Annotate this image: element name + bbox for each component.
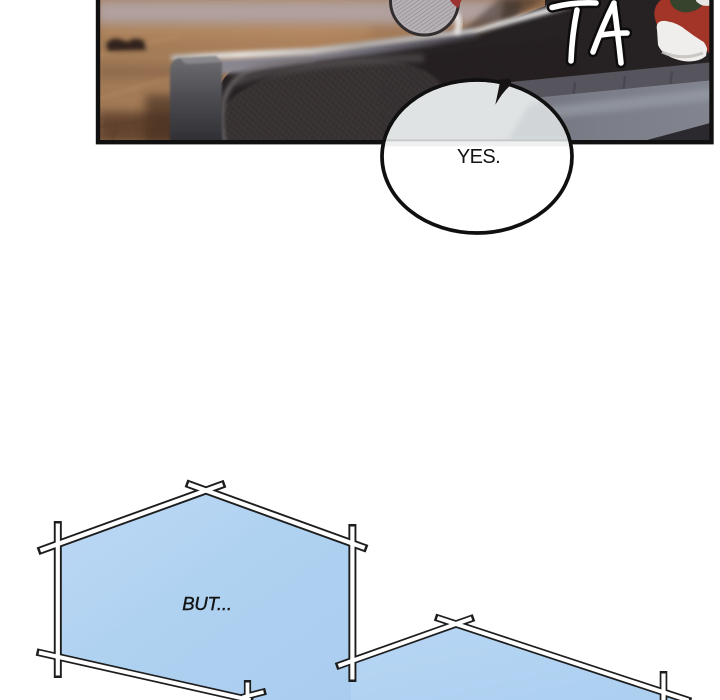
svg-text:YES.: YES. xyxy=(457,146,500,168)
svg-text:BUT...: BUT... xyxy=(182,593,232,614)
